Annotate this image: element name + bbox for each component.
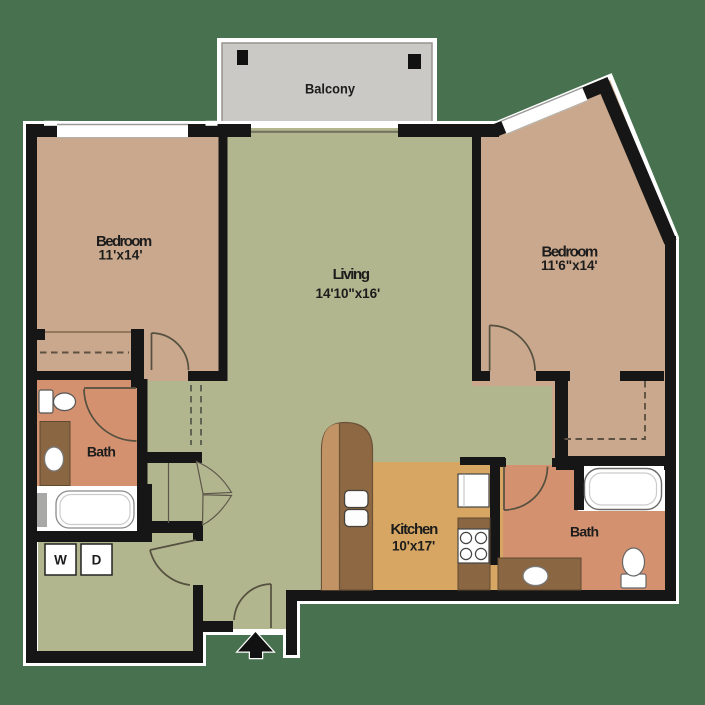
svg-text:14'10"x16': 14'10"x16' [316,286,381,301]
svg-text:10'x17': 10'x17' [392,539,435,554]
svg-text:Living: Living [333,266,370,283]
svg-text:Kitchen: Kitchen [391,521,439,538]
svg-text:Bath: Bath [87,444,116,460]
svg-text:D: D [92,553,102,568]
svg-text:Bath: Bath [570,524,599,540]
svg-text:W: W [54,553,67,568]
svg-text:11'6"x14': 11'6"x14' [541,258,598,273]
svg-text:11'x14': 11'x14' [99,248,143,263]
svg-text:Balcony: Balcony [305,81,355,97]
